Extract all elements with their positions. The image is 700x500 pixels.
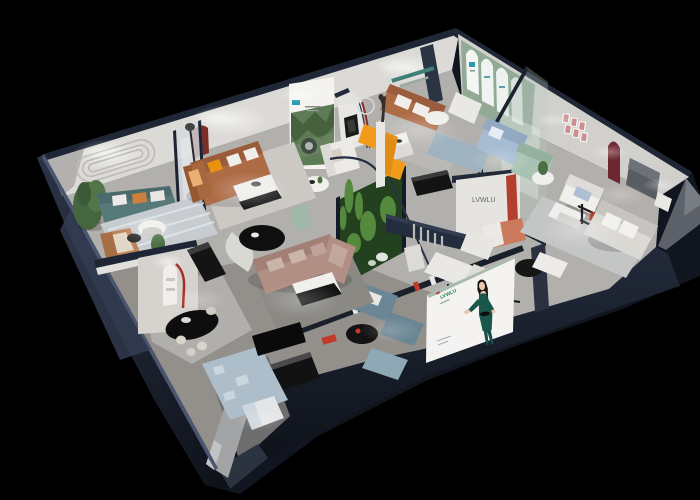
svg-text:LVWLU: LVWLU bbox=[472, 197, 496, 204]
